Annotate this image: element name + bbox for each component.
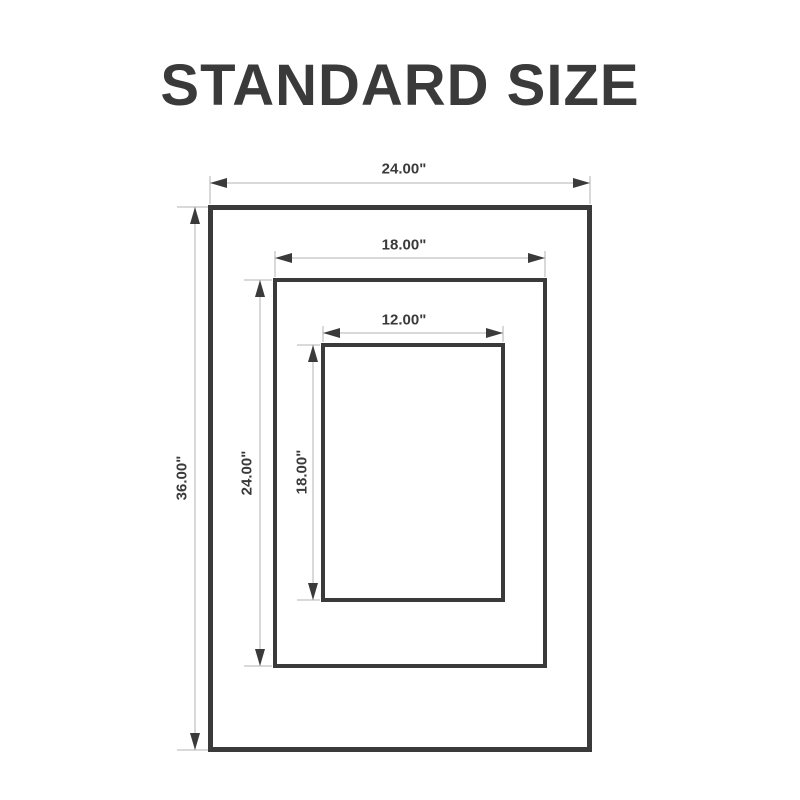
dim-label-height-outer: 36.00" — [174, 456, 191, 501]
dim-label-height-middle: 24.00" — [239, 451, 256, 496]
page-title: STANDARD SIZE — [0, 52, 800, 119]
dim-label-height-inner: 18.00" — [294, 450, 311, 495]
frame-rect-inner-12x18 — [321, 343, 505, 602]
dim-label-width-inner: 12.00" — [382, 312, 427, 329]
dim-width-outer — [210, 176, 590, 204]
dim-label-width-middle: 18.00" — [382, 237, 427, 254]
page-canvas: STANDARD SIZE — [0, 0, 800, 800]
dim-label-width-outer: 24.00" — [382, 161, 427, 178]
